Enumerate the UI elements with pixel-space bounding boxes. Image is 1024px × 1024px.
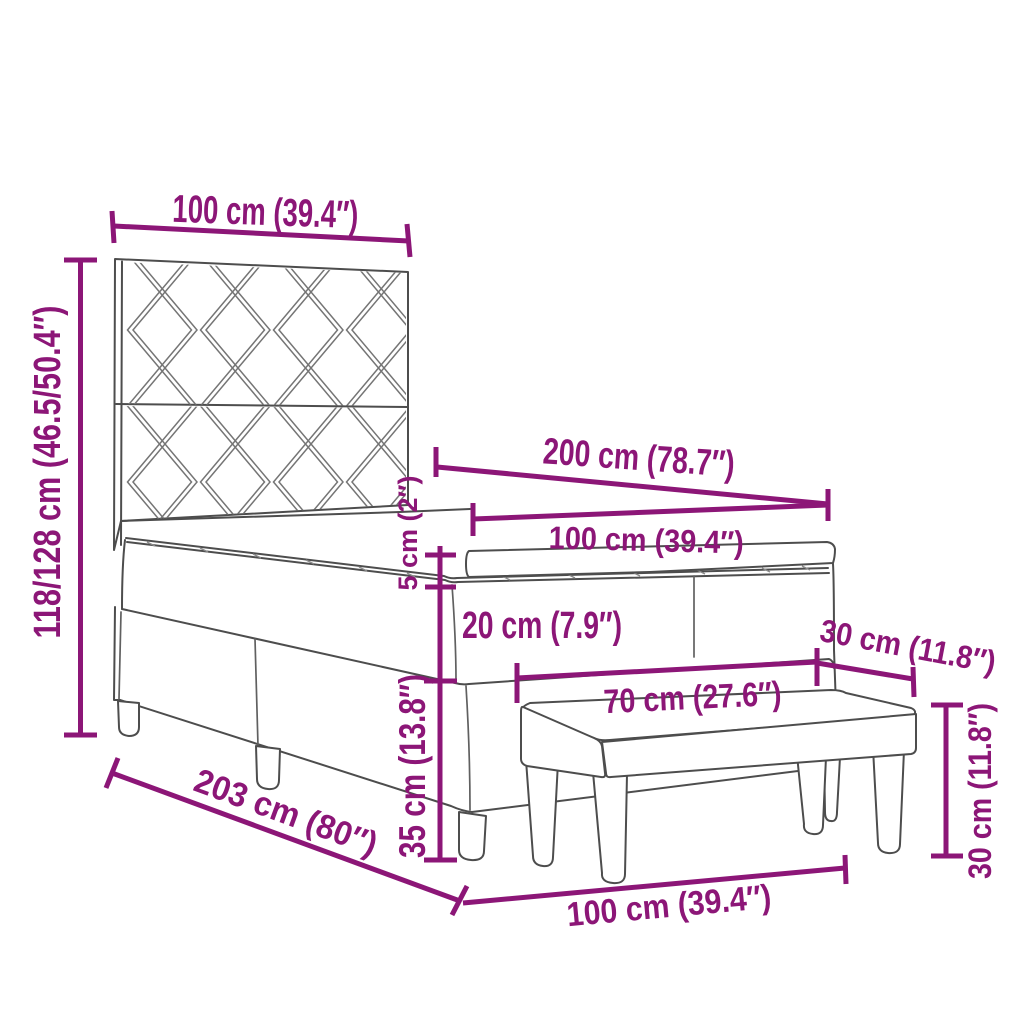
svg-text:5 cm (2″): 5 cm (2″) — [393, 476, 423, 591]
svg-text:20 cm (7.9″): 20 cm (7.9″) — [462, 605, 622, 647]
svg-text:100 cm (39.4″): 100 cm (39.4″) — [548, 519, 744, 560]
svg-text:35 cm (13.8″): 35 cm (13.8″) — [392, 674, 433, 858]
svg-text:118/128 cm (46.5/50.4″): 118/128 cm (46.5/50.4″) — [27, 306, 69, 639]
svg-text:100 cm (39.4″): 100 cm (39.4″) — [172, 188, 359, 237]
svg-text:30 cm (11.8″): 30 cm (11.8″) — [962, 703, 998, 879]
